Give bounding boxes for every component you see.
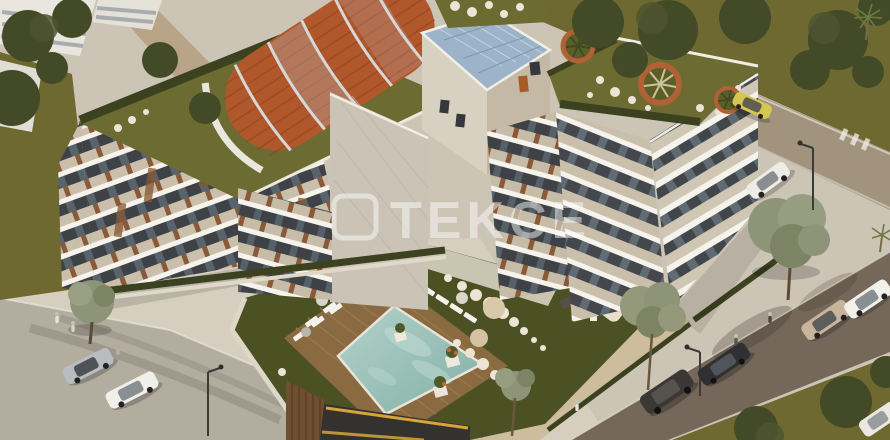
render-scene: TEKCE <box>0 0 890 440</box>
garden-umbrella <box>470 329 488 347</box>
pool-umbrella <box>301 327 311 337</box>
watermark-text: TEKCE <box>390 192 591 250</box>
architectural-render: TEKCE <box>0 0 890 440</box>
tower-orange-door <box>518 76 529 93</box>
pool-umbrella <box>456 292 468 304</box>
garden-umbrella <box>483 297 505 319</box>
